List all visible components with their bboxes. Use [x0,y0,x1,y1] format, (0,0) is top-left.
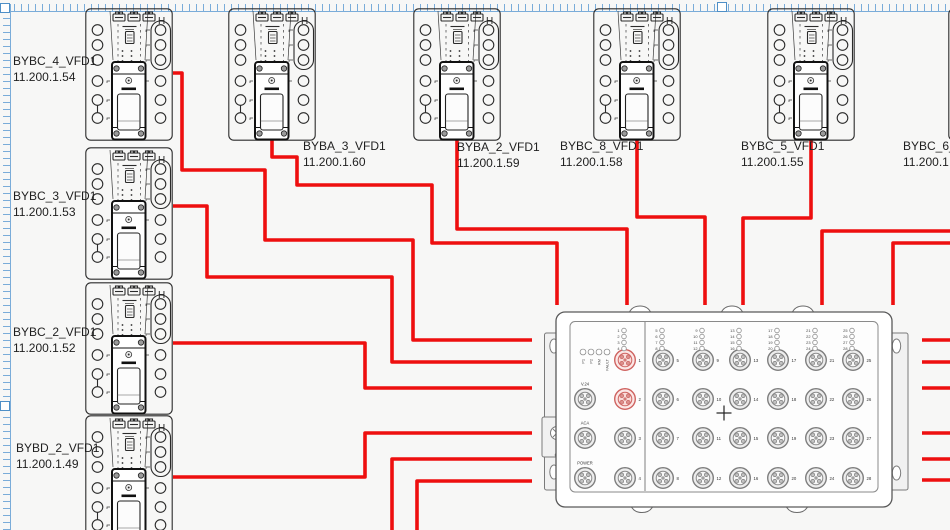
port-led-26 [850,334,855,339]
cable-BYBD_2_VFD1[interactable] [173,433,532,477]
port-led-number: 3 [617,340,619,345]
switch-port-28[interactable] [843,468,864,489]
port-number: 26 [867,397,872,402]
status-led-P2 [588,349,594,355]
port-number: 25 [867,358,872,363]
network-switch[interactable]: 1122334455667788991010111112121313141415… [542,306,908,513]
port-led-18 [775,334,780,339]
selection-handle-2[interactable] [0,401,10,411]
switch-port-26[interactable] [843,389,864,410]
switch-port-2[interactable] [615,389,636,410]
port-led-14 [737,334,742,339]
cable-bottom-left[interactable] [392,459,532,530]
special-port-label: POWER [577,461,593,466]
device-BYBC_8_VFD1[interactable] [594,9,680,140]
switch-port-15[interactable] [730,428,751,449]
port-number: 14 [754,397,759,402]
port-number: 21 [830,358,835,363]
port-led-number: 2 [617,334,619,339]
port-led-number: 8 [655,346,657,351]
port-led-7 [660,340,665,345]
port-led-21 [813,328,818,333]
switch-port-14[interactable] [730,389,751,410]
switch-port-24[interactable] [806,468,827,489]
port-led-number: 12 [693,346,697,351]
switch-port-16[interactable] [730,468,751,489]
port-led-24 [813,346,818,351]
cable-BYBC_4_VFD1[interactable] [173,73,532,340]
switch-port-11[interactable] [693,428,714,449]
switch-port-22[interactable] [806,389,827,410]
switch-port-5[interactable] [653,350,674,371]
switch-port-12[interactable] [693,468,714,489]
port-number: 10 [717,397,722,402]
switch-port-POWER[interactable] [575,468,596,489]
cable-BYBC_2_VFD1[interactable] [173,343,532,388]
port-number: 23 [830,436,835,441]
switch-port-21[interactable] [806,350,827,371]
port-led-13 [737,328,742,333]
status-led-label: P2 [589,359,594,364]
port-led-12 [700,346,705,351]
switch-port-3[interactable] [615,428,636,449]
port-number: 28 [867,476,872,481]
port-led-number: 5 [655,328,657,333]
switch-port-13[interactable] [730,350,751,371]
status-led-RM [596,349,602,355]
port-led-number: 21 [806,328,810,333]
port-led-number: 26 [843,334,847,339]
port-number: 18 [792,397,797,402]
port-led-number: 18 [768,334,772,339]
port-led-number: 9 [695,328,697,333]
status-led-FAULT [604,349,610,355]
port-led-28 [850,346,855,351]
port-led-number: 6 [655,334,657,339]
port-led-8 [660,346,665,351]
port-led-number: 28 [843,346,847,351]
diagram-canvas[interactable]: H [0,0,950,530]
device-BYBD_2_VFD1[interactable] [86,416,172,530]
port-led-17 [775,328,780,333]
port-led-number: 22 [806,334,810,339]
device-BYBA_2_VFD1[interactable] [414,9,500,140]
port-led-25 [850,328,855,333]
switch-port-V.24[interactable] [575,389,596,410]
port-number: 27 [867,436,872,441]
port-led-3 [622,340,627,345]
switch-port-23[interactable] [806,428,827,449]
port-led-23 [813,340,818,345]
switch-port-ACA[interactable] [575,428,596,449]
switch-port-19[interactable] [768,428,789,449]
port-number: 19 [792,436,797,441]
status-led-label: P1 [581,359,586,364]
port-number: 22 [830,397,835,402]
cable-right-edge-b[interactable] [893,243,950,305]
port-led-2 [622,334,627,339]
status-led-P1 [580,349,586,355]
port-number: 20 [792,476,797,481]
switch-port-7[interactable] [653,428,674,449]
port-number: 24 [830,476,835,481]
port-led-4 [622,346,627,351]
port-led-number: 23 [806,340,810,345]
device-BYBA_3_VFD1[interactable] [229,9,315,140]
port-number: 15 [754,436,759,441]
port-number: 16 [754,476,759,481]
port-led-number: 16 [730,346,734,351]
switch-port-10[interactable] [693,389,714,410]
port-led-number: 11 [693,340,697,345]
switch-port-6[interactable] [653,389,674,410]
switch-port-20[interactable] [768,468,789,489]
port-led-number: 19 [768,340,772,345]
port-led-9 [700,328,705,333]
port-led-10 [700,334,705,339]
cable-BYBC_5_VFD1[interactable] [743,140,811,305]
device-BYBC_4_VFD1[interactable] [86,9,172,140]
port-led-number: 7 [655,340,657,345]
cable-bottom-right[interactable] [417,481,532,530]
special-port-label: V.24 [581,382,590,387]
switch-port-4[interactable] [615,468,636,489]
switch-port-17[interactable] [768,350,789,371]
port-number: 11 [717,436,722,441]
selection-handle-1[interactable] [717,2,727,12]
cable-BYBA_2_VFD1[interactable] [457,140,627,305]
port-led-number: 17 [768,328,772,333]
port-number: 17 [792,358,797,363]
special-port-label: ACA [581,421,590,426]
port-led-19 [775,340,780,345]
diagram-svg: H [0,0,950,530]
switch-port-18[interactable] [768,389,789,410]
status-led-label: RM [597,359,602,365]
switch-port-27[interactable] [843,428,864,449]
port-led-number: 13 [730,328,734,333]
port-led-number: 25 [843,328,847,333]
switch-port-9[interactable] [693,350,714,371]
port-led-11 [700,340,705,345]
device-BYBC_5_VFD1[interactable] [768,9,854,140]
switch-port-25[interactable] [843,350,864,371]
switch-port-1[interactable] [615,350,636,371]
port-number: 12 [717,476,722,481]
switch-port-8[interactable] [653,468,674,489]
device-BYBC_3_VFD1[interactable] [86,148,172,279]
port-led-1 [622,328,627,333]
selection-handle-0[interactable] [0,3,10,13]
port-led-6 [660,334,665,339]
port-led-16 [737,346,742,351]
port-led-number: 27 [843,340,847,345]
port-led-number: 15 [730,340,734,345]
cable-BYBC_8_VFD1[interactable] [637,138,705,305]
port-led-20 [775,346,780,351]
port-led-15 [737,340,742,345]
device-BYBC_2_VFD1[interactable] [86,283,172,414]
port-led-22 [813,334,818,339]
port-led-5 [660,328,665,333]
status-led-label: FAULT [605,358,610,370]
port-led-27 [850,340,855,345]
port-led-number: 1 [617,328,619,333]
port-number: 13 [754,358,759,363]
